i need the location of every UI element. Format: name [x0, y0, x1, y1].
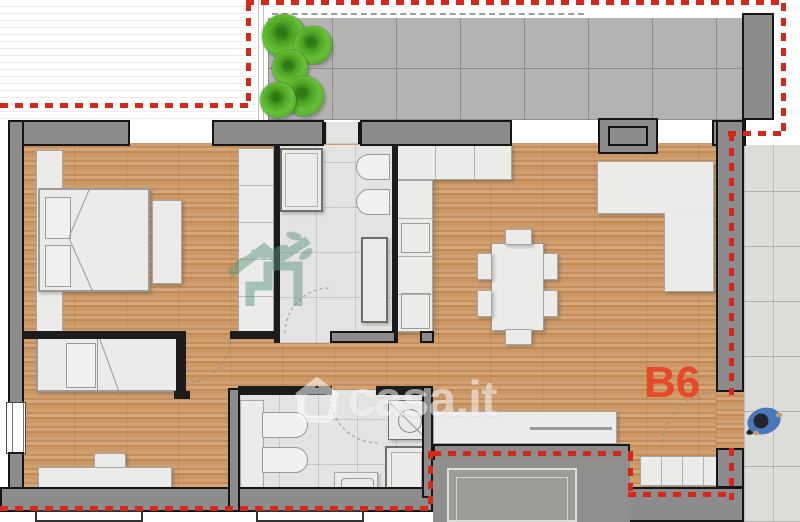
green-leaves-house-icon: [218, 212, 318, 312]
boundary-dash: [433, 451, 633, 456]
person-head: [754, 414, 769, 429]
casa-watermark-text: casa.it: [348, 370, 497, 428]
casa-house-icon: [292, 374, 342, 424]
bathroom1-bottom-wall: [330, 331, 396, 343]
bathroom1-right-wall: [392, 145, 398, 343]
bedroom1-bottom-wall: [22, 331, 186, 339]
window: [6, 402, 26, 454]
left-wall-upper: [8, 120, 24, 404]
boundary-dash: [729, 133, 734, 395]
boundary-dash: [628, 492, 734, 497]
stair-landing: [447, 468, 577, 522]
wall-segment: [360, 120, 512, 146]
boundary-dash: [428, 451, 433, 511]
bathroom2-left-wall: [228, 388, 240, 512]
door-swing-arcs: [0, 0, 800, 522]
logo-step-stroke: [250, 266, 298, 306]
wall-segment: [230, 331, 280, 339]
stair-landing-inner-line: [456, 477, 568, 522]
window: [35, 510, 143, 522]
wall-end-cap: [174, 391, 190, 399]
terrace-door-threshold: [324, 122, 360, 144]
person-hand: [753, 431, 759, 435]
wall-segment: [212, 120, 324, 146]
person-hand: [776, 413, 783, 417]
wall-segment: [8, 120, 130, 146]
casa-watermark: casa.it: [292, 368, 532, 430]
kitchen-wall-stub: [420, 331, 434, 343]
unit-label: B6: [644, 358, 700, 408]
boundary-dash: [0, 506, 432, 511]
bedroom2-right-wall: [176, 333, 186, 395]
boundary-dash: [628, 453, 633, 497]
boundary-dash: [728, 131, 784, 136]
terrace-right-wall: [742, 13, 774, 120]
person-top-view-icon: [742, 400, 786, 444]
boundary-dash: [781, 3, 786, 135]
floor-plan: casa.it B6: [0, 0, 800, 522]
bedroom1-door-arc: [186, 339, 230, 383]
boundary-dash: [0, 103, 250, 108]
window: [256, 510, 364, 522]
pillar-inner: [608, 126, 648, 146]
boundary-dash: [246, 3, 251, 108]
boundary-dash: [246, 0, 786, 5]
